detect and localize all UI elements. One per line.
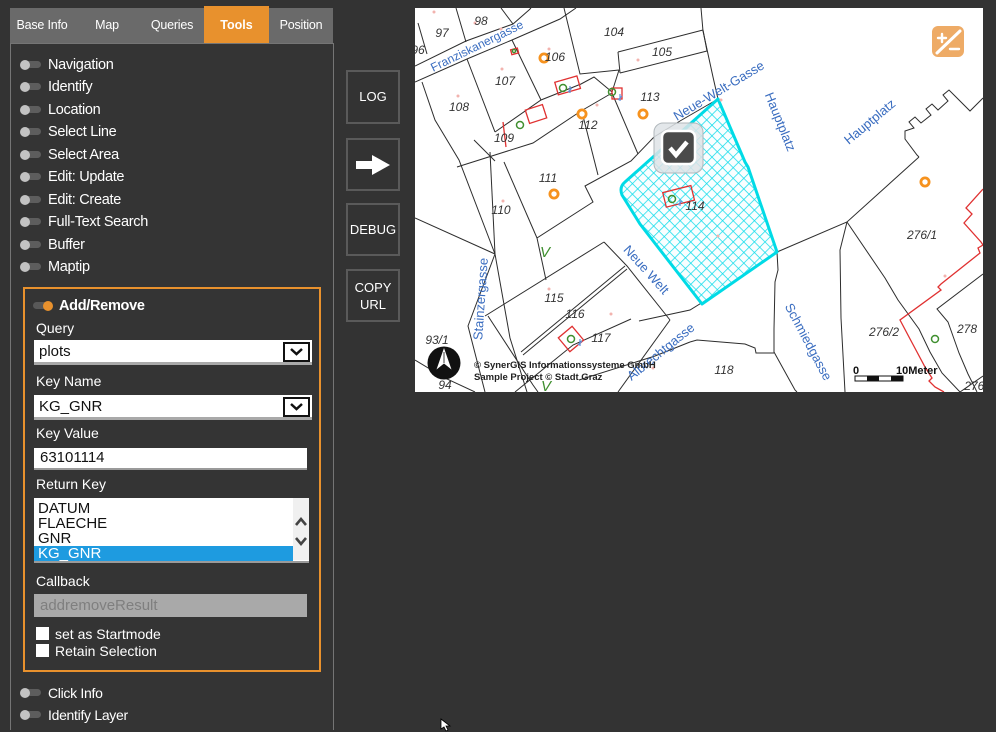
svg-text:276/: 276/ xyxy=(963,379,983,392)
svg-text:108: 108 xyxy=(449,100,469,114)
svg-text:96: 96 xyxy=(415,43,425,57)
svg-text:105: 105 xyxy=(652,45,672,59)
svg-text:97: 97 xyxy=(435,26,450,40)
svg-text:115: 115 xyxy=(544,291,563,305)
svg-text:0: 0 xyxy=(853,365,859,377)
svg-text:10Meter: 10Meter xyxy=(896,365,938,377)
svg-text:276/1: 276/1 xyxy=(906,228,937,242)
svg-text:Sample Project © Stadt Graz: Sample Project © Stadt Graz xyxy=(474,372,603,383)
svg-text:116: 116 xyxy=(565,307,584,321)
svg-text:111: 111 xyxy=(539,171,557,185)
svg-text:Albrechtgasse: Albrechtgasse xyxy=(624,320,697,384)
svg-text:Hauptplatz: Hauptplatz xyxy=(762,90,799,153)
svg-text:Schmiedgasse: Schmiedgasse xyxy=(782,301,835,383)
svg-text:Hauptplatz: Hauptplatz xyxy=(841,96,898,147)
svg-text:94: 94 xyxy=(438,378,452,392)
svg-text:Stainzergasse: Stainzergasse xyxy=(470,257,491,340)
svg-text:278: 278 xyxy=(956,322,977,336)
svg-text:93/1: 93/1 xyxy=(425,333,448,347)
svg-text:© SynerGIS Informationssysteme: © SynerGIS Informationssysteme GmbH xyxy=(474,360,656,371)
svg-text:112: 112 xyxy=(578,118,597,132)
svg-text:107: 107 xyxy=(495,74,516,88)
svg-text:98: 98 xyxy=(474,14,488,28)
svg-text:276/2: 276/2 xyxy=(868,325,899,339)
svg-text:104: 104 xyxy=(604,25,624,39)
svg-text:110: 110 xyxy=(491,203,510,217)
svg-text:117: 117 xyxy=(591,331,611,345)
svg-text:V: V xyxy=(540,244,552,261)
svg-text:118: 118 xyxy=(714,363,733,377)
svg-text:109: 109 xyxy=(494,131,514,145)
svg-text:106: 106 xyxy=(545,50,565,64)
svg-text:113: 113 xyxy=(640,90,659,104)
svg-text:114: 114 xyxy=(685,199,704,213)
